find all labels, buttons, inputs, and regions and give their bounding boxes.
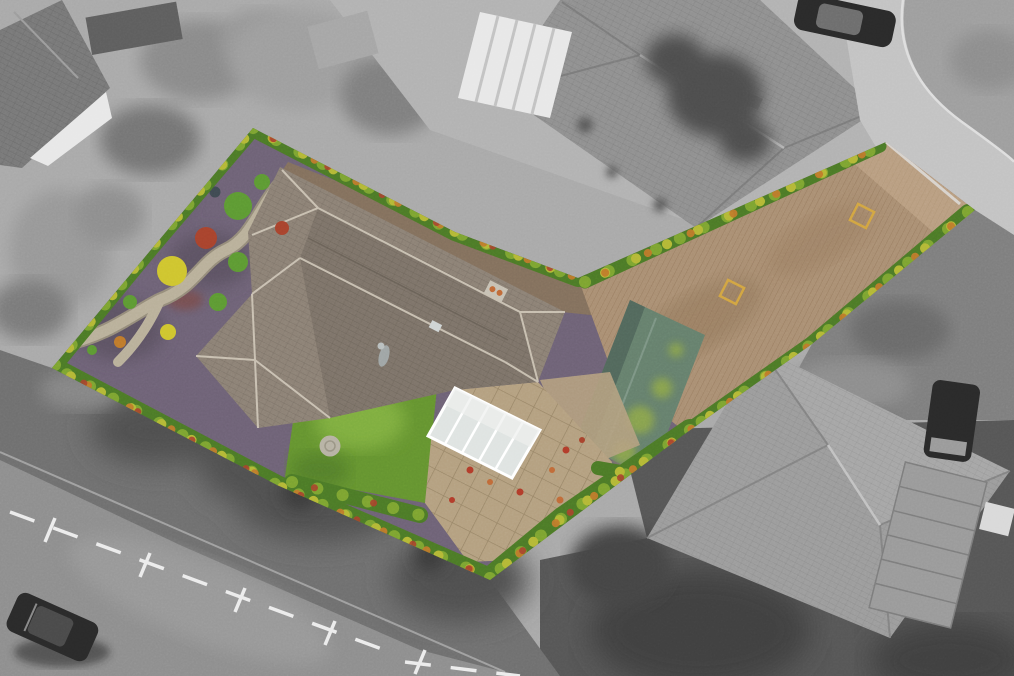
aerial-photo — [0, 0, 1014, 676]
film-grain-overlay — [0, 0, 1014, 676]
aerial-photo-canvas — [0, 0, 1014, 676]
